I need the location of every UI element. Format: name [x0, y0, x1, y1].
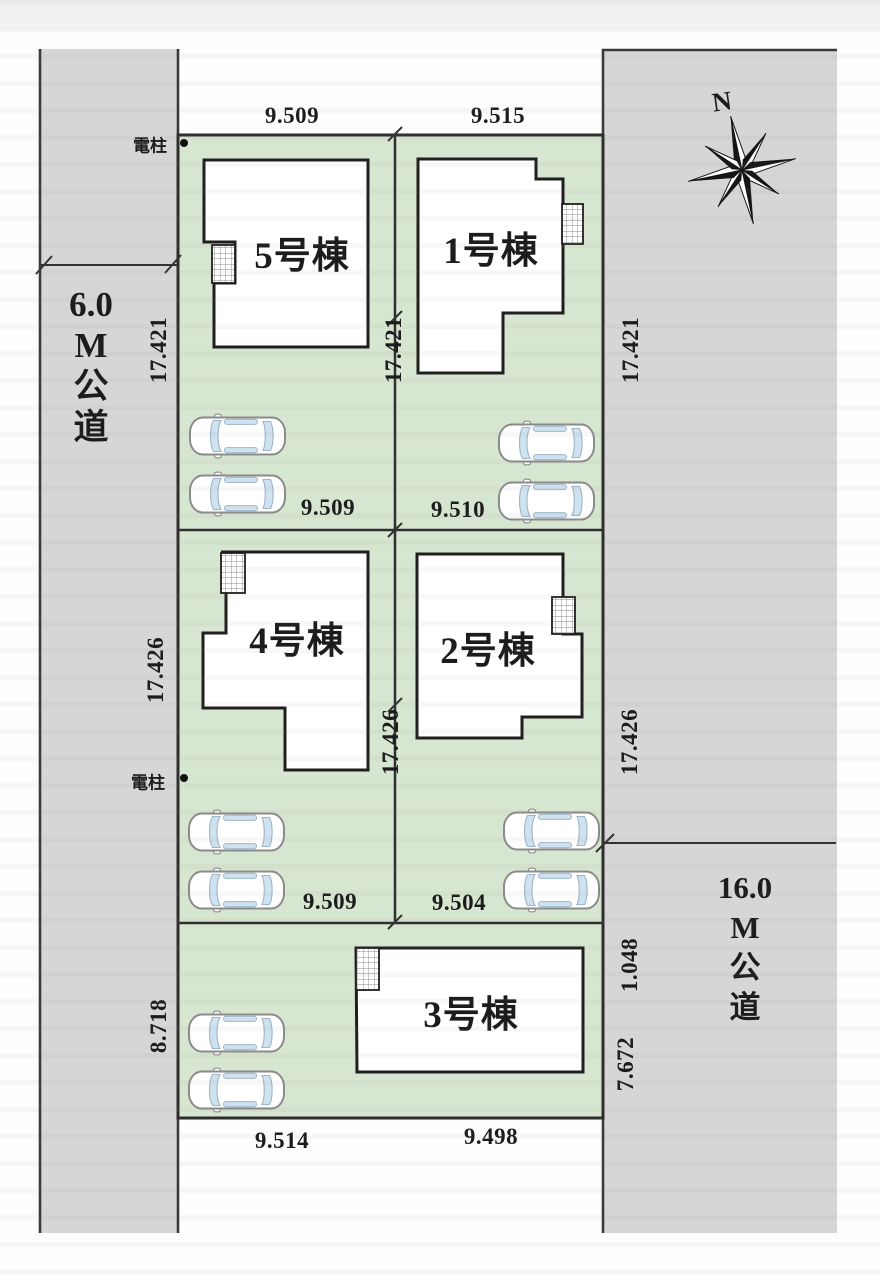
porch-2 — [552, 597, 575, 634]
dim-lot2-bottom: 9.504 — [432, 890, 486, 916]
dim-right-small-upper: 1.048 — [617, 938, 643, 992]
car-lot5-1 — [190, 414, 285, 458]
dim-lot3-bottom-right: 9.498 — [464, 1124, 518, 1150]
building-1-label: 1号棟 — [443, 220, 539, 274]
dim-right-upper: 17.421 — [618, 317, 644, 383]
building-5-label: 5号棟 — [254, 225, 350, 279]
porch-1 — [562, 204, 583, 244]
left-road-label-line3: 公 — [69, 366, 113, 407]
dim-right-middle: 17.426 — [617, 709, 643, 775]
right-road-label-line2: M — [718, 908, 772, 948]
right-road-width-label: 16.0 M 公 道 — [718, 868, 772, 1028]
car-lot4-1 — [189, 810, 284, 854]
car-lot3-2 — [189, 1068, 284, 1112]
dim-center-middle: 17.426 — [378, 709, 404, 775]
car-lot2-2 — [504, 868, 599, 912]
car-lot3-1 — [189, 1011, 284, 1055]
car-lot5-2 — [190, 472, 285, 516]
left-road-label-line2: M — [69, 325, 113, 366]
porch-5 — [212, 245, 235, 283]
utility-pole-label-top: 電柱 — [133, 132, 167, 157]
utility-pole-label-middle: 電柱 — [131, 769, 165, 794]
dim-left-middle: 17.426 — [143, 637, 169, 703]
porch-3 — [356, 948, 379, 990]
dim-left-lower: 8.718 — [146, 999, 172, 1053]
building-4-label: 4号棟 — [249, 610, 345, 664]
car-lot1-2 — [499, 479, 594, 523]
right-road-label-line3: 公 — [718, 948, 772, 988]
dim-left-upper: 17.421 — [146, 317, 172, 383]
dim-lot4-bottom: 9.509 — [303, 889, 357, 915]
dim-center-upper: 17.421 — [381, 317, 407, 383]
porch-4 — [221, 553, 245, 593]
utility-pole-dot-top — [180, 139, 188, 147]
building-3-label: 3号棟 — [423, 984, 519, 1038]
car-lot1-1 — [499, 421, 594, 465]
left-road-label-line1: 6.0 — [69, 284, 113, 325]
dim-lot1-bottom: 9.510 — [431, 497, 485, 523]
dim-lot1-top: 9.515 — [471, 103, 525, 129]
dim-lot5-bottom: 9.509 — [301, 495, 355, 521]
lot-layout-diagram: N 9.509 9.515 9.509 9.510 9.509 9.504 9.… — [0, 0, 880, 1280]
left-road-label-line4: 道 — [69, 407, 113, 448]
right-road-label-line1: 16.0 — [718, 868, 772, 908]
dim-right-small-lower: 7.672 — [613, 1037, 639, 1091]
left-road-width-label: 6.0 M 公 道 — [69, 284, 113, 448]
right-road-label-line4: 道 — [718, 988, 772, 1028]
building-2-label: 2号棟 — [440, 620, 536, 674]
dim-lot5-top: 9.509 — [265, 103, 319, 129]
car-lot2-1 — [504, 809, 599, 853]
car-lot4-2 — [189, 868, 284, 912]
utility-pole-dot-middle — [180, 774, 188, 782]
dim-lot3-bottom-left: 9.514 — [255, 1128, 309, 1154]
compass-north-label: N — [710, 85, 734, 118]
